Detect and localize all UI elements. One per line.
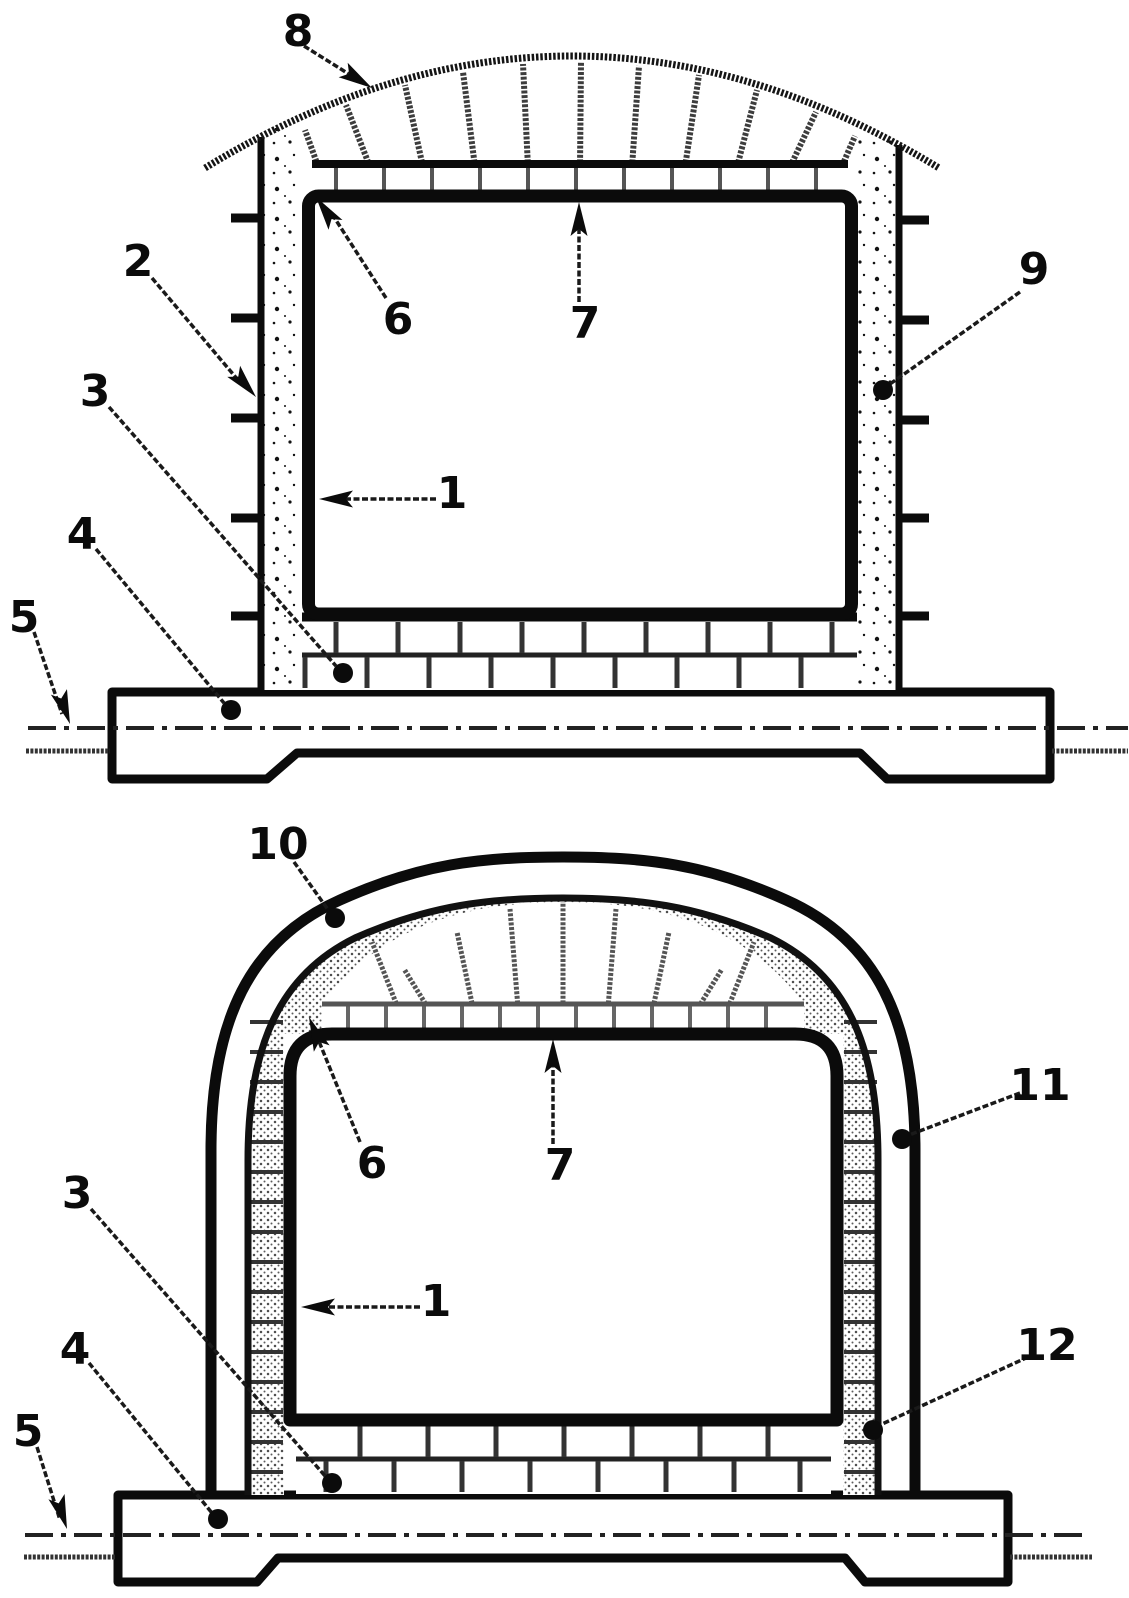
arch-radial-joints [305, 62, 855, 167]
arrowhead [339, 63, 377, 95]
ref-numeral-9: 9 [1019, 244, 1050, 295]
dot-marker [221, 700, 241, 720]
dot-marker [322, 1473, 342, 1493]
dot-marker [863, 1420, 883, 1440]
ref-numeral-12: 12 [1016, 1320, 1077, 1371]
dot-marker [873, 380, 893, 400]
cast-lining-right [857, 140, 897, 690]
ref-numeral-3: 3 [80, 366, 111, 417]
leader-line [152, 278, 238, 380]
label-5: 5 [13, 1406, 75, 1532]
figure-bottom: 10 11 12 6 7 1 3 [13, 819, 1092, 1582]
anchor-ticks-left [231, 218, 260, 616]
leader-line [890, 292, 1020, 384]
ref-numeral-4: 4 [60, 1324, 91, 1375]
dot-marker [325, 908, 345, 928]
ref-numeral-3: 3 [62, 1168, 93, 1219]
hearth-brick-courses [270, 617, 897, 690]
ref-numeral-1: 1 [437, 468, 468, 519]
dot-marker [208, 1509, 228, 1529]
leader-line [880, 1357, 1028, 1425]
furnace-cross-sections-svg: 8 2 9 6 7 1 3 [0, 0, 1129, 1598]
ref-numeral-11: 11 [1009, 1060, 1070, 1111]
figure-top: 8 2 9 6 7 1 3 [9, 6, 1128, 779]
patent-drawing-page: 8 2 9 6 7 1 3 [0, 0, 1129, 1598]
ref-numeral-1: 1 [421, 1276, 452, 1327]
ref-numeral-6: 6 [357, 1138, 388, 1189]
cast-lining-left [262, 128, 302, 690]
label-10: 10 [247, 819, 345, 928]
ref-numeral-7: 7 [545, 1140, 576, 1191]
label-8: 8 [283, 6, 377, 95]
anchor-ticks-right [900, 220, 929, 616]
ref-numeral-5: 5 [13, 1406, 44, 1457]
ref-numeral-4: 4 [67, 509, 98, 560]
label-5: 5 [9, 592, 78, 727]
ref-numeral-5: 5 [9, 592, 40, 643]
furnace-chamber [290, 1034, 837, 1420]
arrowhead [51, 689, 78, 727]
leader-line [909, 1093, 1020, 1135]
ref-numeral-10: 10 [247, 819, 308, 870]
label-12: 12 [863, 1320, 1078, 1440]
foundation-slab [118, 1495, 1008, 1582]
leader-line [96, 549, 224, 703]
dot-marker [892, 1129, 912, 1149]
ref-numeral-2: 2 [123, 236, 154, 287]
roof-brick-course [312, 164, 848, 190]
foundation-slab [112, 692, 1050, 779]
ref-numeral-8: 8 [283, 6, 314, 57]
dot-marker [333, 663, 353, 683]
ref-numeral-7: 7 [570, 298, 601, 349]
hearth-brick-courses [296, 1424, 831, 1494]
ref-numeral-6: 6 [383, 294, 414, 345]
